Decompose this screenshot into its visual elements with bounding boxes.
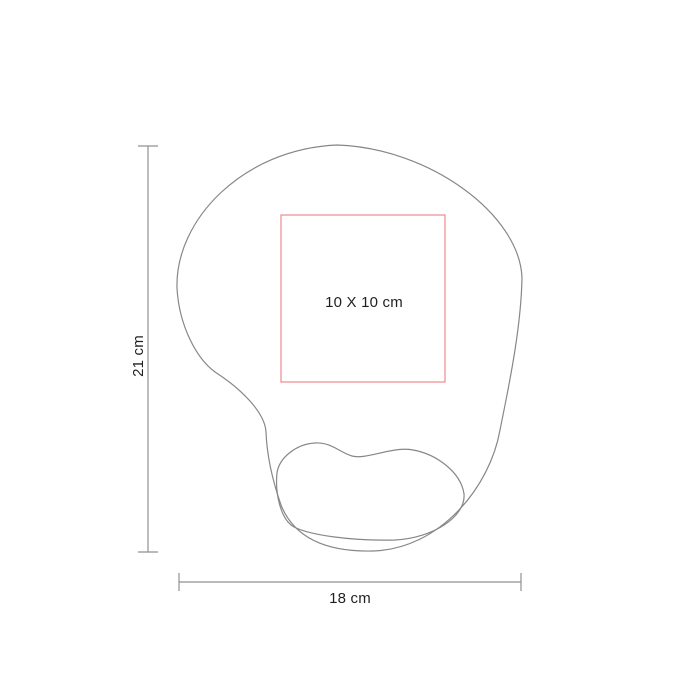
print-area-label: 10 X 10 cm: [284, 294, 444, 312]
wrist-rest-outline: [277, 443, 465, 540]
mousepad-outline: [177, 145, 522, 551]
height-dimension-label: 21 cm: [130, 335, 148, 377]
width-dimension-label: 18 cm: [310, 590, 390, 608]
diagram-canvas: 10 X 10 cm 21 cm 18 cm: [0, 0, 700, 700]
